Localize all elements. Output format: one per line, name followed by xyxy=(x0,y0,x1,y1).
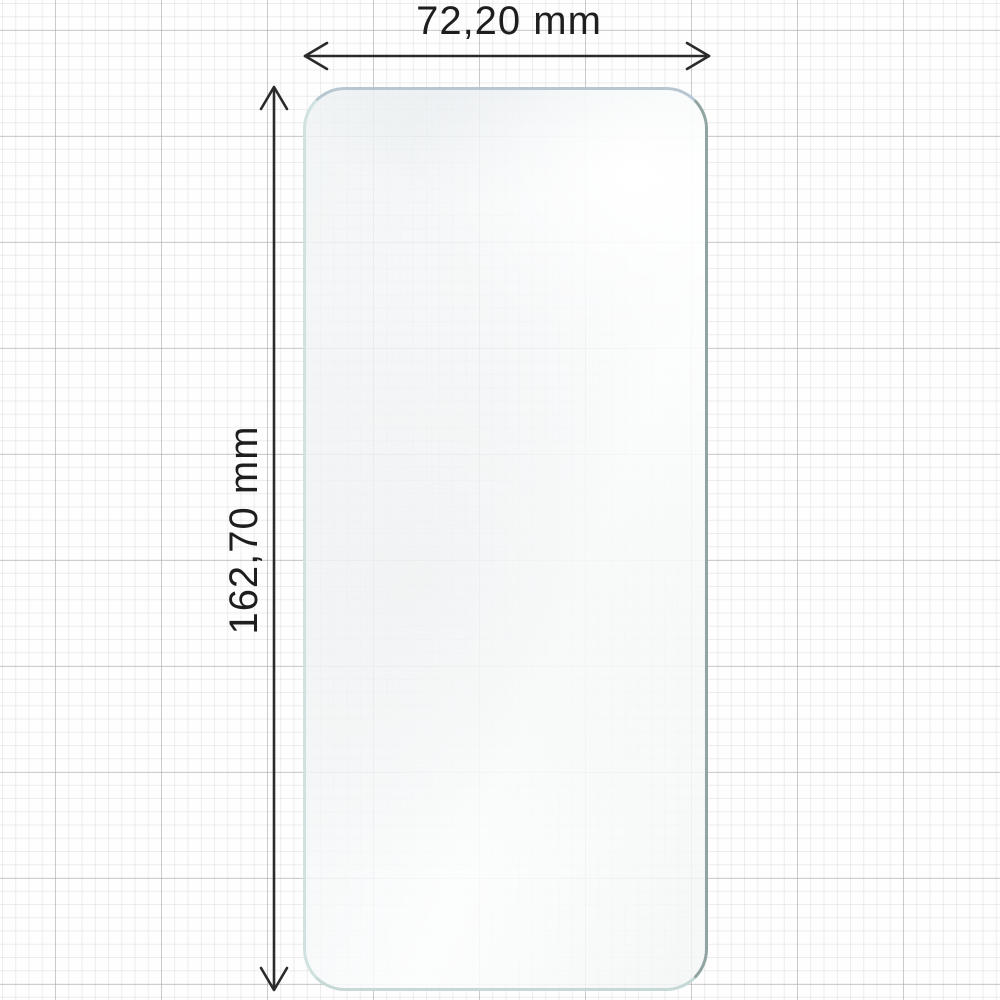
glass-reflection-highlight xyxy=(306,90,705,988)
height-dimension-label: 162,70 mm xyxy=(224,425,264,634)
screen-protector-film xyxy=(303,87,708,991)
horizontal-double-arrow-icon xyxy=(305,43,709,69)
width-dimension-label: 72,20 mm xyxy=(416,1,602,41)
graph-paper-canvas: 72,20 mm 162,70 mm xyxy=(0,0,1000,1000)
